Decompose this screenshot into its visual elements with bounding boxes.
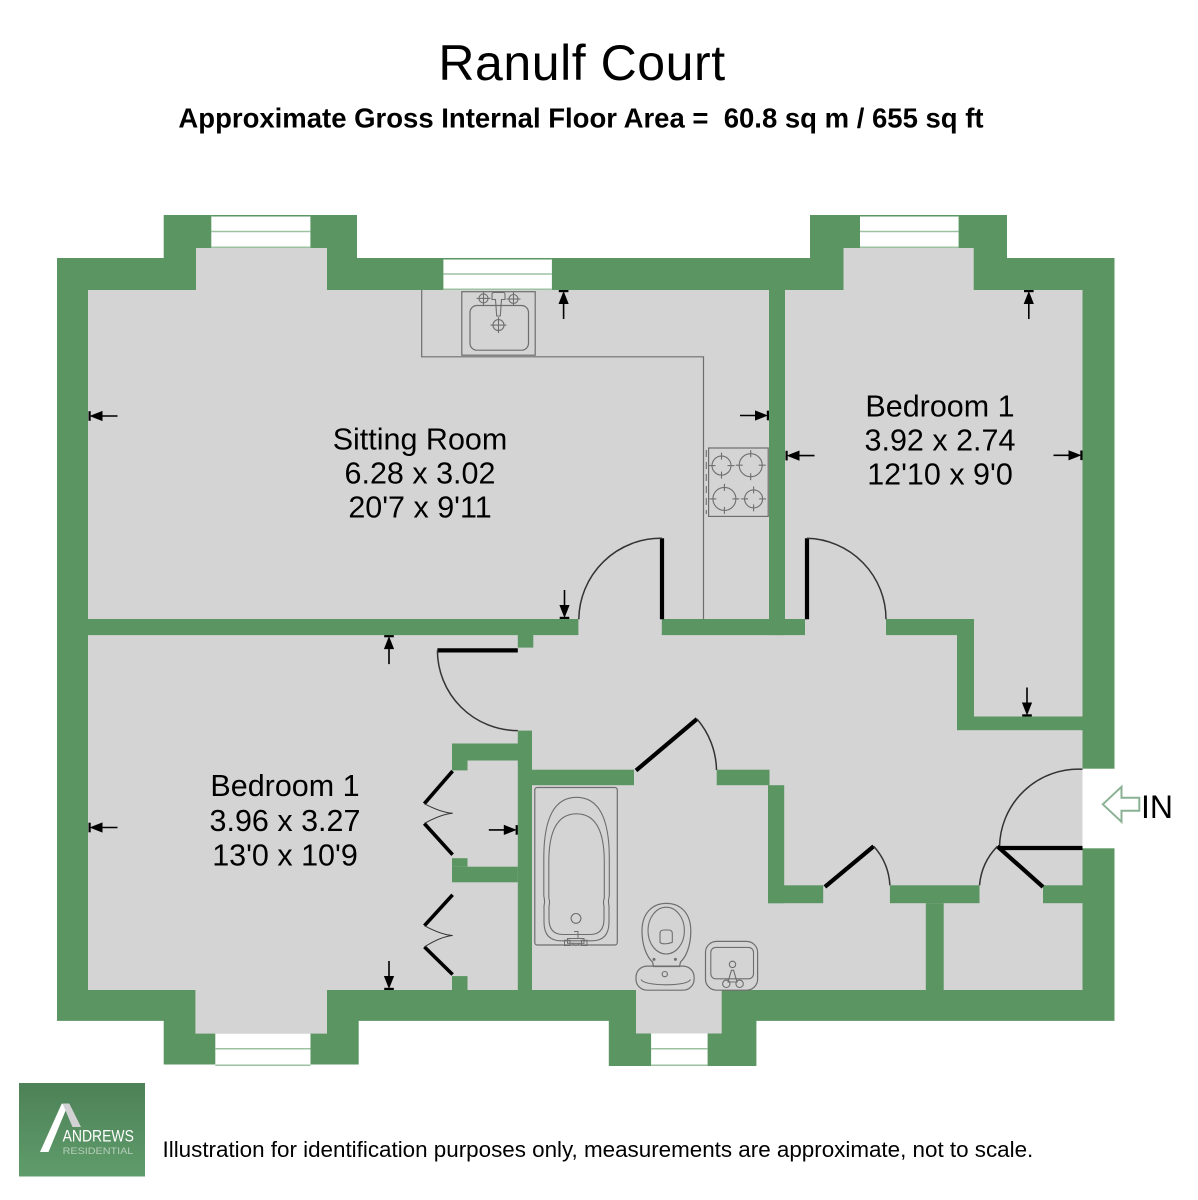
svg-text:Approximate Gross Internal Flo: Approximate Gross Internal Floor Area = … [178,103,983,134]
svg-text:RESIDENTIAL: RESIDENTIAL [63,1146,134,1156]
svg-text:3.92 x 2.74: 3.92 x 2.74 [865,424,1016,458]
svg-text:6.28 x 3.02: 6.28 x 3.02 [345,457,496,491]
svg-text:Illustration for identificatio: Illustration for identification purposes… [163,1137,1034,1162]
svg-text:Ranulf Court: Ranulf Court [438,35,725,91]
svg-text:3.96 x 3.27: 3.96 x 3.27 [210,804,361,838]
svg-text:13'0 x 10'9: 13'0 x 10'9 [212,839,358,873]
svg-text:12'10 x 9'0: 12'10 x 9'0 [867,458,1013,492]
svg-text:IN: IN [1141,789,1173,825]
svg-text:20'7 x 9'11: 20'7 x 9'11 [348,491,491,525]
svg-text:Bedroom 1: Bedroom 1 [210,769,359,803]
svg-text:ANDREWS: ANDREWS [63,1126,134,1145]
svg-text:Bedroom 1: Bedroom 1 [865,390,1014,424]
svg-text:Sitting Room: Sitting Room [333,423,508,457]
